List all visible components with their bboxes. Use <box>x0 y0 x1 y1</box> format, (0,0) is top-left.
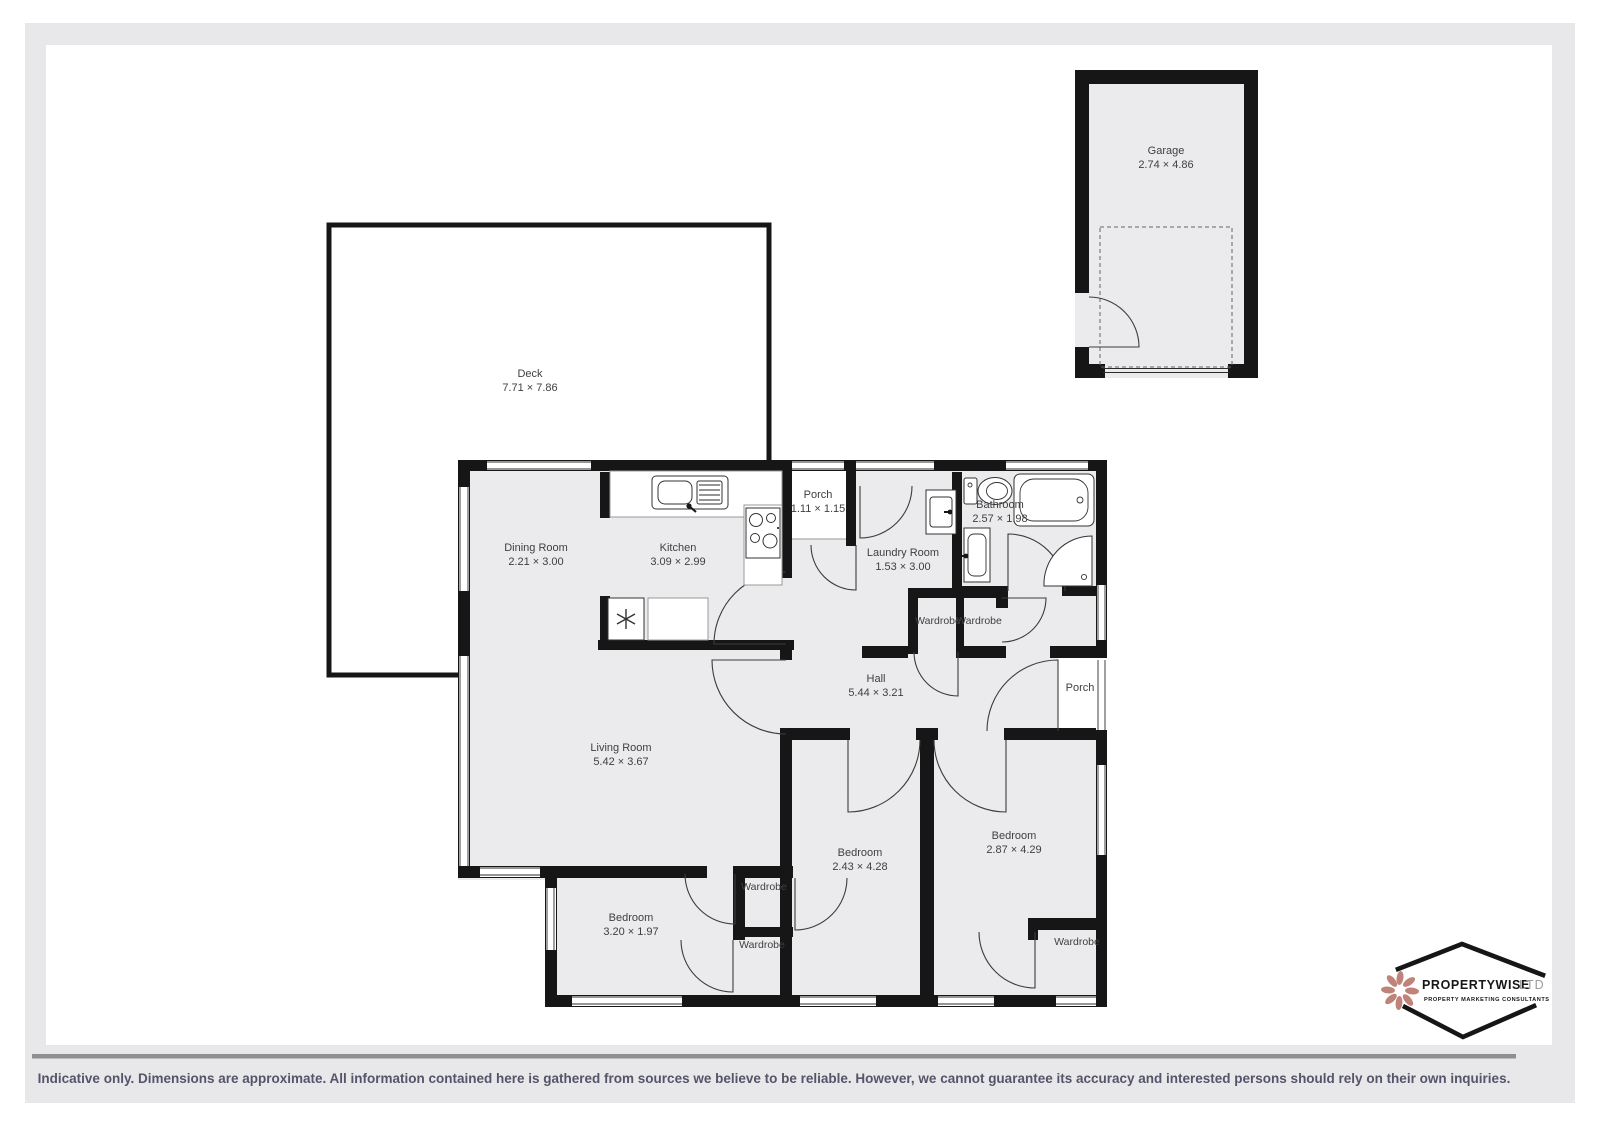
room-label-kitchen: Kitchen <box>660 542 697 554</box>
room-label-dining: Dining Room <box>504 542 568 554</box>
stove-icon <box>746 508 780 558</box>
window <box>938 996 994 1006</box>
room-dims-porch-front: 1.11 × 1.15 <box>791 503 846 515</box>
logo-brand-text: PROPERTYWISE <box>1422 978 1530 992</box>
window <box>1097 585 1106 640</box>
room-dims-kitchen: 3.09 × 2.99 <box>650 556 705 568</box>
window <box>800 996 876 1006</box>
room-dims-bedroom-mid: 2.43 × 4.28 <box>832 861 887 873</box>
floorplan-canvas: Deck 7.71 × 7.86 Garage 2.74 × 4.86 <box>0 0 1600 1132</box>
window <box>487 461 591 470</box>
room-label-bathroom: Bathroom <box>976 499 1024 511</box>
disclaimer-text: Indicative only. Dimensions are approxim… <box>38 1071 1511 1086</box>
room-label-porch-front: Porch <box>804 489 833 501</box>
room-label-wardrobe-se: Wardrobe <box>1054 936 1100 948</box>
garage-area: Garage 2.74 × 4.86 <box>1075 70 1258 378</box>
kitchen-sink-icon <box>652 476 728 512</box>
room-dims-hall: 5.44 × 3.21 <box>848 687 903 699</box>
window <box>1097 765 1106 855</box>
window <box>1056 996 1096 1006</box>
porch-entry-opening <box>1096 658 1107 730</box>
window <box>856 461 934 470</box>
room-dims-dining: 2.21 × 3.00 <box>508 556 563 568</box>
room-dims-laundry: 1.53 × 3.00 <box>875 561 930 573</box>
logo-suffix-text: LTD <box>1519 978 1545 992</box>
room-dims-bedroom-se: 2.87 × 4.29 <box>986 844 1041 856</box>
room-dims-garage: 2.74 × 4.86 <box>1138 159 1193 171</box>
kitchen-bench <box>648 598 708 640</box>
room-label-bedroom-se: Bedroom <box>992 830 1037 842</box>
garage-side-door-opening <box>1075 293 1089 347</box>
window <box>459 656 469 866</box>
room-label-porch-rear: Porch <box>1066 682 1095 694</box>
room-label-wardrobe-ul: Wardrobe <box>915 615 961 627</box>
room-dims-living: 5.42 × 3.67 <box>593 756 648 768</box>
window <box>792 461 844 470</box>
room-label-laundry: Laundry Room <box>867 547 939 559</box>
room-label-wardrobe-stack-bottom: Wardrobe <box>739 939 785 951</box>
room-label-hall: Hall <box>867 673 886 685</box>
room-label-bedroom-sw: Bedroom <box>609 912 654 924</box>
window <box>1006 461 1088 470</box>
window <box>459 487 469 591</box>
room-label-living: Living Room <box>590 742 651 754</box>
window <box>480 867 540 877</box>
room-label-deck: Deck <box>517 368 543 380</box>
floorplan-page: Deck 7.71 × 7.86 Garage 2.74 × 4.86 <box>0 0 1600 1132</box>
fridge-icon <box>608 598 644 640</box>
room-label-wardrobe-stack-top: Wardrobe <box>741 881 787 893</box>
window <box>572 996 682 1006</box>
room-label-wardrobe-ur: Wardrobe <box>956 615 1002 627</box>
disclaimer-divider <box>32 1054 1516 1059</box>
room-dims-deck: 7.71 × 7.86 <box>502 382 557 394</box>
room-dims-bedroom-sw: 3.20 × 1.97 <box>603 926 658 938</box>
room-dims-bathroom: 2.57 × 1.98 <box>972 513 1027 525</box>
window <box>546 888 556 950</box>
laundry-tub-icon <box>926 490 956 534</box>
room-label-garage: Garage <box>1148 145 1185 157</box>
room-label-bedroom-mid: Bedroom <box>838 847 883 859</box>
logo-tagline-text: PROPERTY MARKETING CONSULTANTS <box>1424 997 1550 1003</box>
vanity-icon <box>960 528 990 582</box>
